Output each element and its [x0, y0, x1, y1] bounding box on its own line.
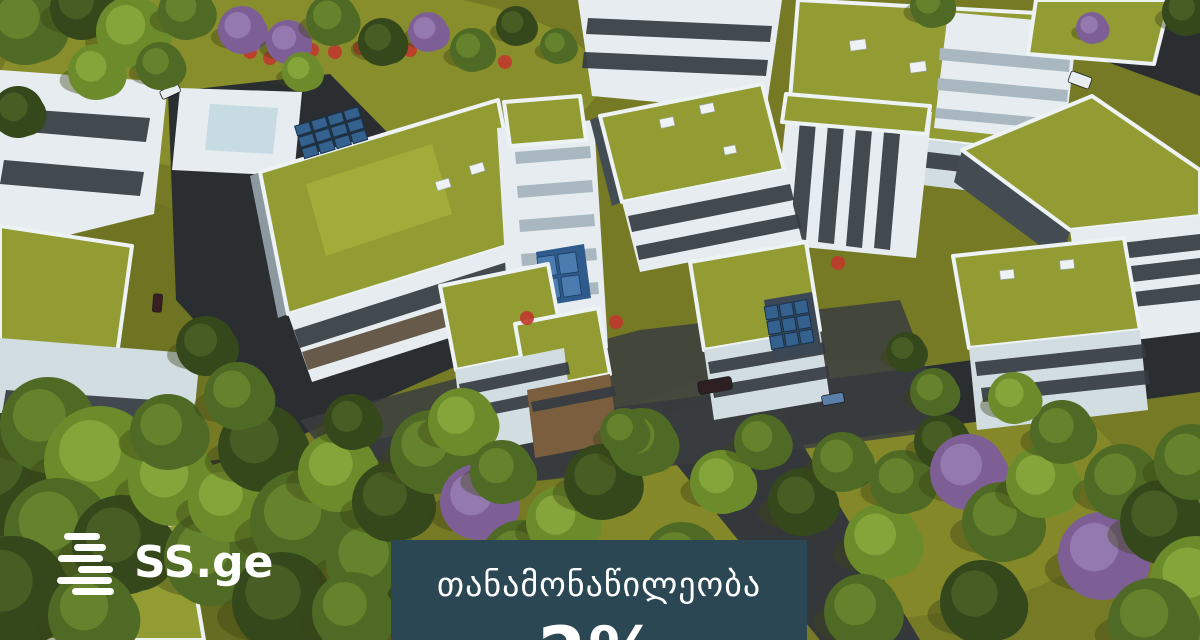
- solar-panel: [767, 320, 782, 335]
- tree-highlight: [142, 48, 168, 74]
- flower-bush: [328, 45, 342, 59]
- tree-highlight: [213, 371, 250, 408]
- ac-unit: [1060, 259, 1075, 269]
- tree-highlight: [777, 477, 814, 514]
- tree-highlight: [184, 324, 217, 357]
- solar-panel: [779, 302, 794, 317]
- solar-panel: [796, 314, 811, 329]
- tree-highlight: [742, 421, 773, 452]
- green-roof: [504, 96, 586, 146]
- glass-panel: [561, 275, 582, 297]
- banner-title: თანამონაწილეობა: [391, 565, 807, 605]
- tree-highlight: [313, 1, 342, 30]
- glass-panel: [558, 252, 579, 274]
- tree-highlight: [891, 337, 913, 359]
- tree-highlight: [413, 17, 435, 39]
- solar-panel: [764, 305, 779, 320]
- tree-highlight: [699, 458, 734, 493]
- tree-highlight: [834, 584, 876, 626]
- promo-banner: თანამონაწილეობა 2%: [391, 540, 807, 640]
- car-dark: [152, 294, 163, 313]
- tree-highlight: [76, 51, 107, 82]
- solar-panel: [784, 332, 799, 347]
- tree-highlight: [916, 374, 942, 400]
- tree-highlight: [940, 444, 982, 486]
- green-roof: [953, 238, 1140, 348]
- flower-bush: [609, 315, 623, 329]
- tree-highlight: [545, 33, 565, 53]
- tree-highlight: [272, 25, 296, 49]
- flower-bush: [520, 311, 534, 325]
- tree-highlight: [1131, 490, 1177, 536]
- ac-unit: [909, 61, 926, 73]
- tree-highlight: [287, 57, 309, 79]
- tree-highlight: [854, 514, 896, 556]
- tree-highlight: [501, 11, 523, 33]
- tree-highlight: [879, 458, 914, 493]
- tree-highlight: [456, 34, 480, 58]
- solar-panel: [794, 300, 809, 315]
- tree-highlight: [323, 582, 367, 626]
- tree-highlight: [606, 414, 632, 440]
- tree-highlight: [106, 5, 146, 45]
- skylight: [205, 104, 278, 154]
- solar-array: [764, 300, 814, 350]
- tree-highlight: [437, 397, 474, 434]
- tree-highlight: [1094, 454, 1136, 496]
- flower-bush: [498, 55, 512, 69]
- tree-highlight: [995, 379, 1024, 408]
- tree-highlight: [1039, 408, 1074, 443]
- tree-highlight: [332, 401, 363, 432]
- tree-highlight: [364, 24, 390, 50]
- ssge-logo-text: SS.ge: [134, 531, 273, 595]
- tree-highlight: [0, 93, 28, 122]
- tree-highlight: [820, 440, 853, 473]
- flower-bush: [831, 256, 845, 270]
- promo-image: SS.ge თანამონაწილეობა 2%: [0, 0, 1200, 640]
- solar-panel: [769, 334, 784, 349]
- solar-panel: [782, 317, 797, 332]
- tree-highlight: [1120, 589, 1168, 637]
- tree-highlight: [951, 571, 997, 617]
- ssge-bars-logo-icon: [57, 531, 117, 595]
- tree-highlight: [224, 12, 250, 38]
- tree-highlight: [479, 448, 514, 483]
- ssge-logo: SS.ge: [57, 531, 273, 595]
- ac-unit: [849, 39, 866, 51]
- tree-highlight: [1080, 16, 1098, 34]
- solar-panel: [799, 329, 814, 344]
- banner-value: 2%: [391, 612, 807, 640]
- tree-highlight: [59, 420, 121, 482]
- ac-unit: [1000, 269, 1015, 279]
- tree-highlight: [140, 404, 182, 446]
